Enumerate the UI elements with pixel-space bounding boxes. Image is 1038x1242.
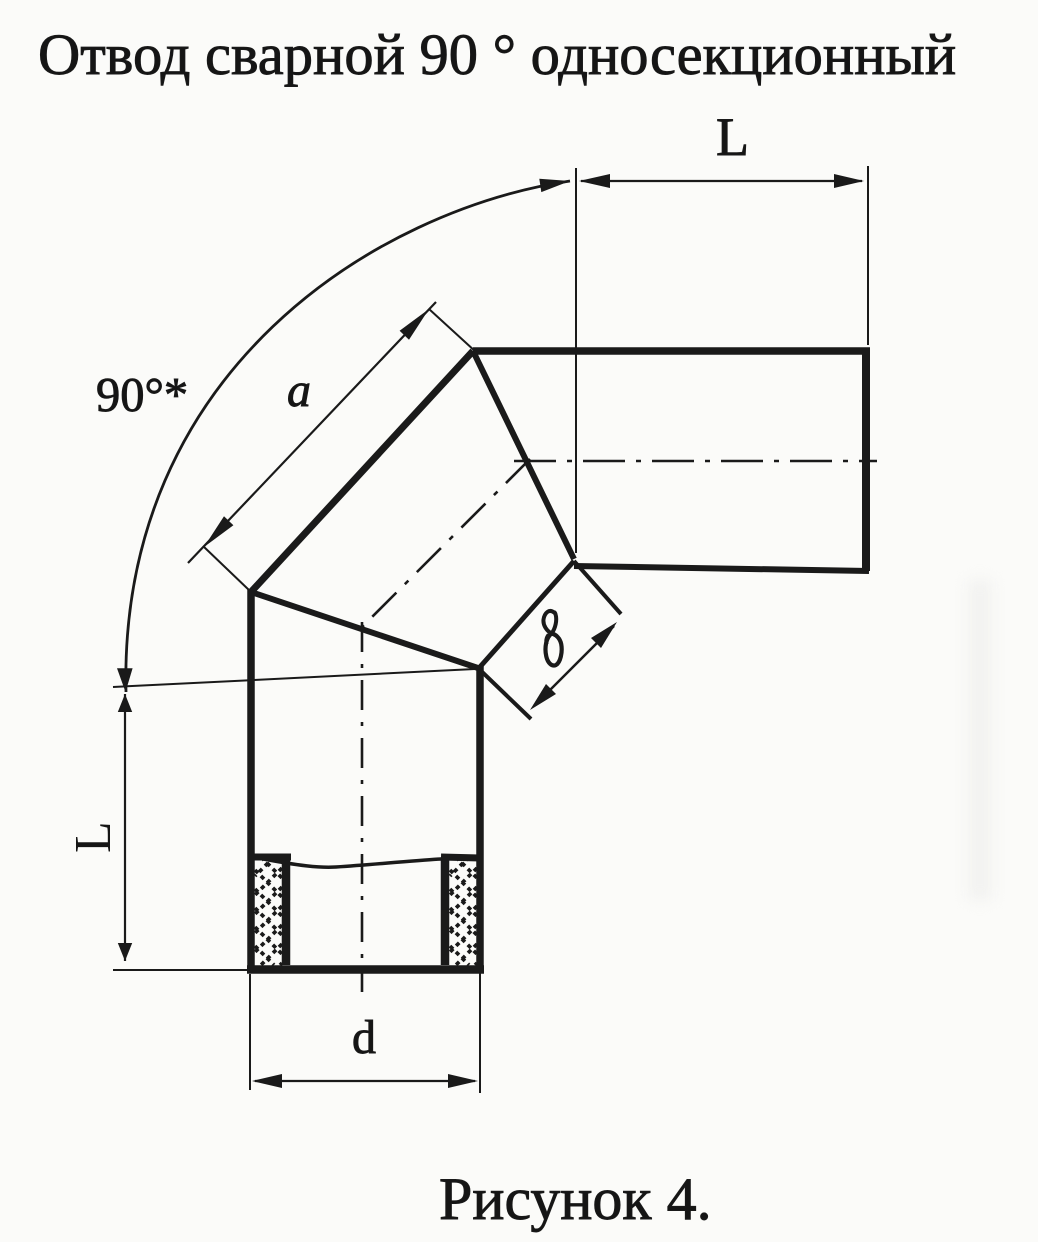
svg-text:Рисунок 4.: Рисунок 4. <box>439 1166 712 1232</box>
svg-text:L: L <box>716 107 749 167</box>
svg-text:a: a <box>287 364 311 417</box>
svg-text:Отвод сварной 90 ° односекцион: Отвод сварной 90 ° односекционный <box>38 22 956 87</box>
svg-text:L: L <box>65 821 122 853</box>
svg-text:d: d <box>352 1011 376 1064</box>
svg-text:90°*: 90°* <box>96 369 188 422</box>
